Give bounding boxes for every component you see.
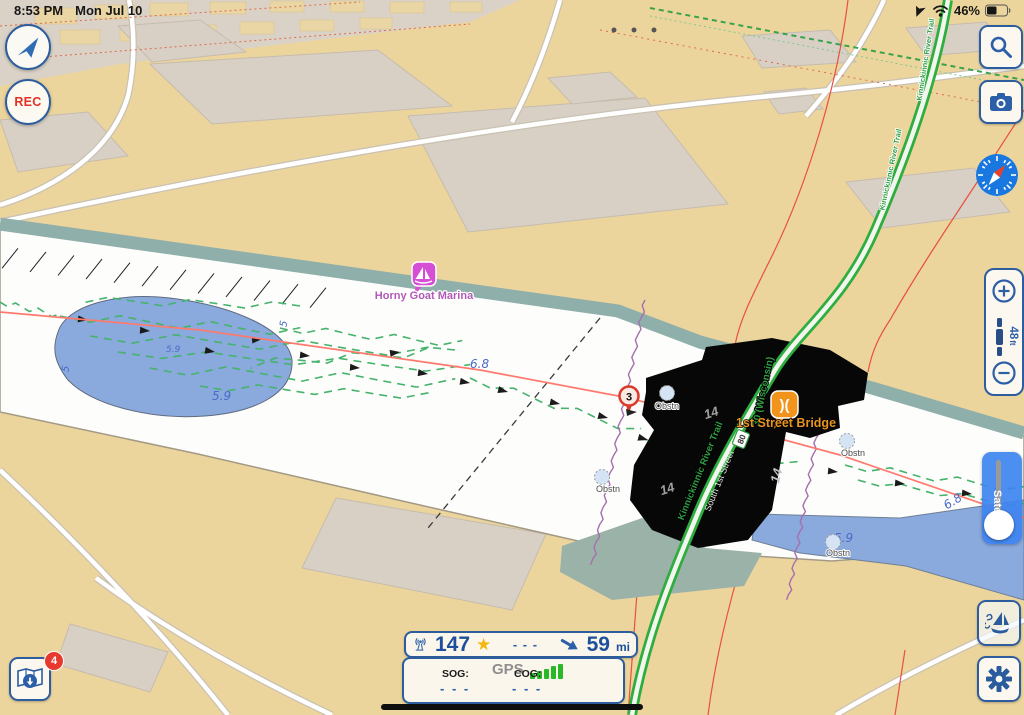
- scale-text: 48ft: [1007, 326, 1019, 345]
- station-distance-unit: mi: [616, 640, 630, 656]
- obstruction-label: Obstn: [826, 548, 850, 558]
- camera-button[interactable]: [979, 80, 1023, 124]
- zoom-panel: 48ft: [984, 268, 1024, 396]
- cog-label: COG:: [514, 668, 541, 680]
- depth-label: 5.9: [166, 345, 181, 355]
- obstruction-label: Obstn: [841, 448, 865, 458]
- status-bar: 8:53 PM Mon Jul 10 46%: [0, 0, 1024, 22]
- obstruction-label: Obstn: [596, 484, 620, 494]
- wifi-icon: [932, 4, 949, 17]
- satellite-slider[interactable]: Satellite: [982, 452, 1022, 544]
- station-distance: 59: [587, 634, 610, 655]
- record-label: REC: [14, 95, 41, 109]
- nautical-chart[interactable]: 6.8 5.9 5 5.9 5 6.8 5.9 14 14 14 Obstn O…: [0, 0, 1024, 715]
- battery-percent: 46%: [954, 3, 980, 18]
- compass-button[interactable]: [975, 153, 1019, 197]
- gear-icon: [985, 665, 1013, 693]
- home-indicator[interactable]: [381, 704, 643, 710]
- sog-label: SOG:: [442, 668, 469, 680]
- settings-button[interactable]: [977, 656, 1021, 702]
- chart-manager-button[interactable]: 4: [9, 657, 51, 701]
- station-value: - - -: [497, 637, 553, 652]
- scale-indicator: [996, 318, 1003, 356]
- depth-label: 6.8: [470, 357, 489, 371]
- station-beacon-icon: [412, 636, 429, 653]
- zoom-out-button[interactable]: [994, 363, 1015, 384]
- search-icon: [988, 34, 1014, 60]
- slider-knob[interactable]: [984, 510, 1014, 540]
- sailboat-wind-icon: [985, 610, 1013, 636]
- zoom-in-button[interactable]: [994, 281, 1015, 302]
- battery-icon: [985, 4, 1012, 17]
- follow-location-button[interactable]: [5, 24, 51, 70]
- marina-label: Horny Goat Marina: [375, 290, 474, 302]
- depth-label: 5.9: [212, 389, 231, 403]
- status-time: 8:53 PM: [14, 3, 63, 18]
- station-heading: 147: [435, 634, 470, 655]
- location-arrow-icon: [914, 4, 927, 17]
- record-track-button[interactable]: REC: [5, 79, 51, 125]
- status-date: Mon Jul 10: [75, 3, 142, 18]
- gps-panel[interactable]: GPS SOG: - - - COG: - - -: [402, 657, 625, 704]
- bridge-label: 1st Street Bridge: [736, 416, 836, 430]
- search-button[interactable]: [979, 25, 1023, 69]
- waypoint-number: 3: [626, 392, 632, 404]
- camera-icon: [988, 90, 1014, 114]
- compass-icon: [975, 153, 1019, 197]
- aqua-map-app: 6.8 5.9 5 5.9 5 6.8 5.9 14 14 14 Obstn O…: [0, 0, 1024, 715]
- navigation-arrow-icon: [13, 32, 43, 62]
- map-download-icon: [16, 667, 44, 691]
- cog-value: - - -: [512, 681, 542, 696]
- sog-value: - - -: [440, 681, 470, 696]
- bridge-icon: )(: [780, 397, 790, 414]
- station-info-bar[interactable]: 147 ★ - - - 59 mi: [404, 631, 638, 658]
- obstruction-label: Obstn: [655, 401, 679, 411]
- downloads-badge: 4: [44, 651, 64, 671]
- favorite-star-icon[interactable]: ★: [476, 636, 491, 653]
- weather-button[interactable]: [977, 600, 1021, 646]
- current-direction-arrow-icon: [560, 637, 581, 653]
